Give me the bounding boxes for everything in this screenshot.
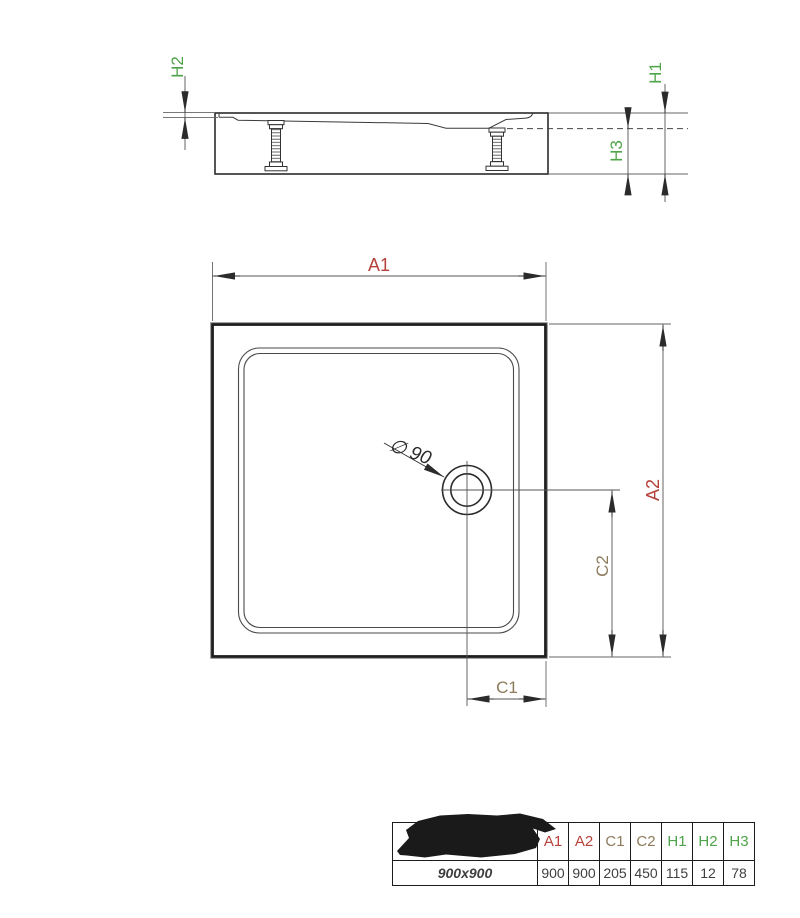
logo-cell xyxy=(393,823,538,861)
dimension-h3: H3 xyxy=(607,107,628,193)
shower-tray-drawing: H2 H1 H3 xyxy=(0,0,800,918)
h3-label: H3 xyxy=(607,140,626,162)
value-a2: 900 xyxy=(569,861,600,886)
col-header-c1: C1 xyxy=(600,823,631,861)
value-h1: 115 xyxy=(662,861,693,886)
h1-label: H1 xyxy=(646,62,665,84)
value-h3: 78 xyxy=(724,861,755,886)
col-header-h3: H3 xyxy=(724,823,755,861)
plan-view: A1 ∅ 90 xyxy=(211,255,671,707)
value-c1: 205 xyxy=(600,861,631,886)
dimension-a1: A1 xyxy=(213,255,547,321)
side-view: H2 H1 H3 xyxy=(163,56,688,202)
value-c2: 450 xyxy=(631,861,662,886)
col-header-c2: C2 xyxy=(631,823,662,861)
c1-label: C1 xyxy=(496,678,518,697)
dimension-h1: H1 xyxy=(646,62,665,202)
dimension-c1: C1 xyxy=(467,678,546,699)
c2-label: C2 xyxy=(593,555,612,577)
value-a1: 900 xyxy=(538,861,569,886)
h2-extension-ticks xyxy=(163,113,218,118)
value-h2: 12 xyxy=(693,861,724,886)
dimension-c2: C2 xyxy=(593,490,612,657)
a2-label: A2 xyxy=(643,479,663,501)
a1-label: A1 xyxy=(368,255,390,275)
spec-table: A1 A2 C1 C2 H1 H2 H3 900x900 900 900 205… xyxy=(392,822,755,886)
technical-drawing-page: H2 H1 H3 xyxy=(0,0,800,918)
col-header-a1: A1 xyxy=(538,823,569,861)
tray-plan-outline xyxy=(213,325,546,657)
col-header-a2: A2 xyxy=(569,823,600,861)
dimension-a2: A2 xyxy=(643,324,663,657)
col-header-h1: H1 xyxy=(662,823,693,861)
dimension-h2: H2 xyxy=(168,56,187,150)
col-header-h2: H2 xyxy=(693,823,724,861)
model-size-label: 900x900 xyxy=(393,861,538,886)
h2-label: H2 xyxy=(168,56,187,78)
